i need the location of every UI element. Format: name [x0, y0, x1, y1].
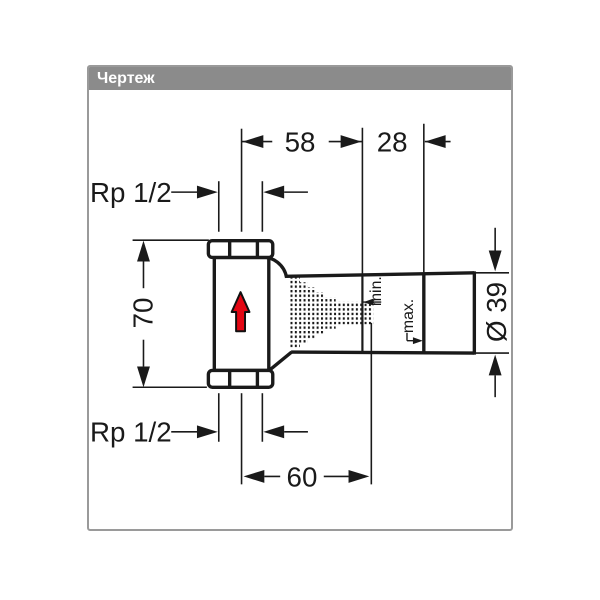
dim-28-label: 28 — [377, 126, 408, 157]
box-top-edge — [286, 273, 474, 276]
panel-title: Чертеж — [97, 70, 155, 87]
dim-diameter-label: Ø 39 — [481, 282, 511, 342]
max-marker: max. — [400, 299, 423, 344]
min-marker: min. — [363, 276, 385, 306]
spindle-stipple — [290, 277, 373, 348]
dimension-thread-top: Rp 1/2 — [90, 177, 308, 232]
dimension-height-70: 70 — [127, 240, 208, 387]
dimension-diameter-39: Ø 39 — [475, 228, 511, 397]
dim-70-label: 70 — [127, 298, 158, 329]
hex-nut-bottom — [208, 370, 272, 387]
max-label: max. — [400, 299, 417, 333]
hex-nut-top — [208, 241, 272, 258]
dim-58-label: 58 — [285, 126, 316, 157]
body-chamfer — [270, 352, 292, 370]
valve-assembly — [208, 241, 474, 388]
thread-bottom-label: Rp 1/2 — [90, 417, 172, 448]
thread-top-label: Rp 1/2 — [90, 177, 172, 208]
technical-drawing: 58 28 Rp 1/2 70 — [89, 90, 511, 529]
min-label: min. — [368, 276, 385, 306]
dim-60-label: 60 — [287, 461, 318, 492]
drawing-panel: Чертеж — [87, 65, 513, 531]
panel-header: Чертеж — [89, 67, 511, 90]
dimension-thread-bottom: Rp 1/2 — [90, 393, 308, 448]
box-bottom-edge — [291, 352, 474, 353]
drawing-canvas: 58 28 Rp 1/2 70 — [89, 90, 511, 529]
